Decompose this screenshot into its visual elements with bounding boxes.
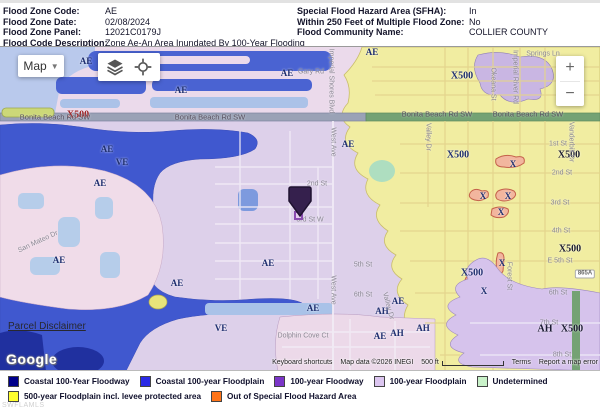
legend-swatch (274, 376, 285, 387)
map-type-label: Map (23, 59, 46, 73)
map-scale: 500 ft (421, 359, 504, 366)
legend-label: Out of Special Flood Hazard Area (227, 392, 356, 401)
legend-label: Coastal 100-year Floodplain (156, 377, 265, 386)
flood-info-right-column: Special Flood Hazard Area (SFHA):In With… (297, 6, 548, 38)
flood-zone-map[interactable]: AEAEAEAEX500X500AEVEAEAEAEAEAEVEAEX500X5… (0, 46, 600, 371)
zoom-in-button[interactable]: + (556, 56, 584, 81)
map-tools (98, 53, 160, 81)
watermark: SWFLAMLS (2, 402, 45, 409)
legend-label: 100-year Floodway (290, 377, 363, 386)
legend-item: 500-year Floodplain incl. levee protecte… (8, 391, 201, 402)
land-pocket (0, 166, 163, 310)
legend-swatch (211, 391, 222, 402)
legend-item: Out of Special Flood Hazard Area (211, 391, 356, 402)
legend-item: Coastal 100-year Floodplain (140, 376, 265, 387)
bonita-beach-road (0, 113, 366, 121)
target-icon[interactable] (133, 57, 153, 77)
map-data-credit: Map data ©2026 INEGI (340, 359, 413, 366)
map-type-button[interactable]: Map ▼ (18, 55, 64, 77)
zoom-control: + − (556, 56, 584, 106)
report-map-error-link[interactable]: Report a map error (539, 359, 598, 366)
legend-label: 100-year Floodplain (390, 377, 467, 386)
keyboard-shortcuts-link[interactable]: Keyboard shortcuts (272, 359, 332, 366)
legend-label: Undetermined (493, 377, 548, 386)
legend-swatch (8, 376, 19, 387)
legend-item: 100-year Floodplain (374, 376, 467, 387)
field-label: Within 250 Feet of Multiple Flood Zone: (297, 17, 469, 28)
legend-item: 100-year Floodway (274, 376, 363, 387)
legend-row: Coastal 100-Year FloodwayCoastal 100-yea… (8, 376, 600, 387)
location-marker[interactable] (285, 185, 315, 219)
legend-swatch (477, 376, 488, 387)
field-value: In (469, 6, 477, 17)
legend-label: Coastal 100-Year Floodway (24, 377, 130, 386)
park-area (369, 160, 395, 182)
scale-label: 500 ft (421, 359, 439, 366)
parcel-disclaimer-link[interactable]: Parcel Disclaimer (8, 321, 86, 332)
map-attribution: Keyboard shortcuts Map data ©2026 INEGI … (272, 359, 598, 366)
legend-item: Coastal 100-Year Floodway (8, 376, 130, 387)
field-value: AE (105, 6, 117, 17)
field-label: Special Flood Hazard Area (SFHA): (297, 6, 469, 17)
legend-item: Undetermined (477, 376, 548, 387)
field-label: Flood Community Name: (297, 27, 469, 38)
flood-zone-report-page: Flood Zone Code:AE Flood Zone Date:02/08… (0, 0, 600, 414)
google-logo[interactable]: Google (6, 351, 57, 367)
field-value: COLLIER COUNTY (469, 27, 548, 38)
layers-icon[interactable] (105, 57, 125, 77)
field-label: Flood Zone Code: (3, 6, 105, 17)
legend-swatch (8, 391, 19, 402)
legend-swatch (140, 376, 151, 387)
legend-label: 500-year Floodplain incl. levee protecte… (24, 392, 201, 401)
legend-row: 500-year Floodplain incl. levee protecte… (8, 391, 600, 402)
legend-swatch (374, 376, 385, 387)
dropdown-arrow-icon: ▼ (51, 62, 59, 71)
flood-legend: Coastal 100-Year FloodwayCoastal 100-yea… (0, 370, 600, 414)
field-value: 02/08/2024 (105, 17, 150, 28)
field-value: 12021C0179J (105, 27, 161, 38)
flood-info-header: Flood Zone Code:AE Flood Zone Date:02/08… (0, 0, 600, 49)
scale-bar (442, 361, 504, 366)
flood-info-left-column: Flood Zone Code:AE Flood Zone Date:02/08… (3, 6, 305, 48)
field-value: No (469, 17, 481, 28)
field-label: Flood Zone Date: (3, 17, 105, 28)
terms-link[interactable]: Terms (512, 359, 531, 366)
zoom-out-button[interactable]: − (556, 82, 584, 107)
field-label: Flood Zone Panel: (3, 27, 105, 38)
